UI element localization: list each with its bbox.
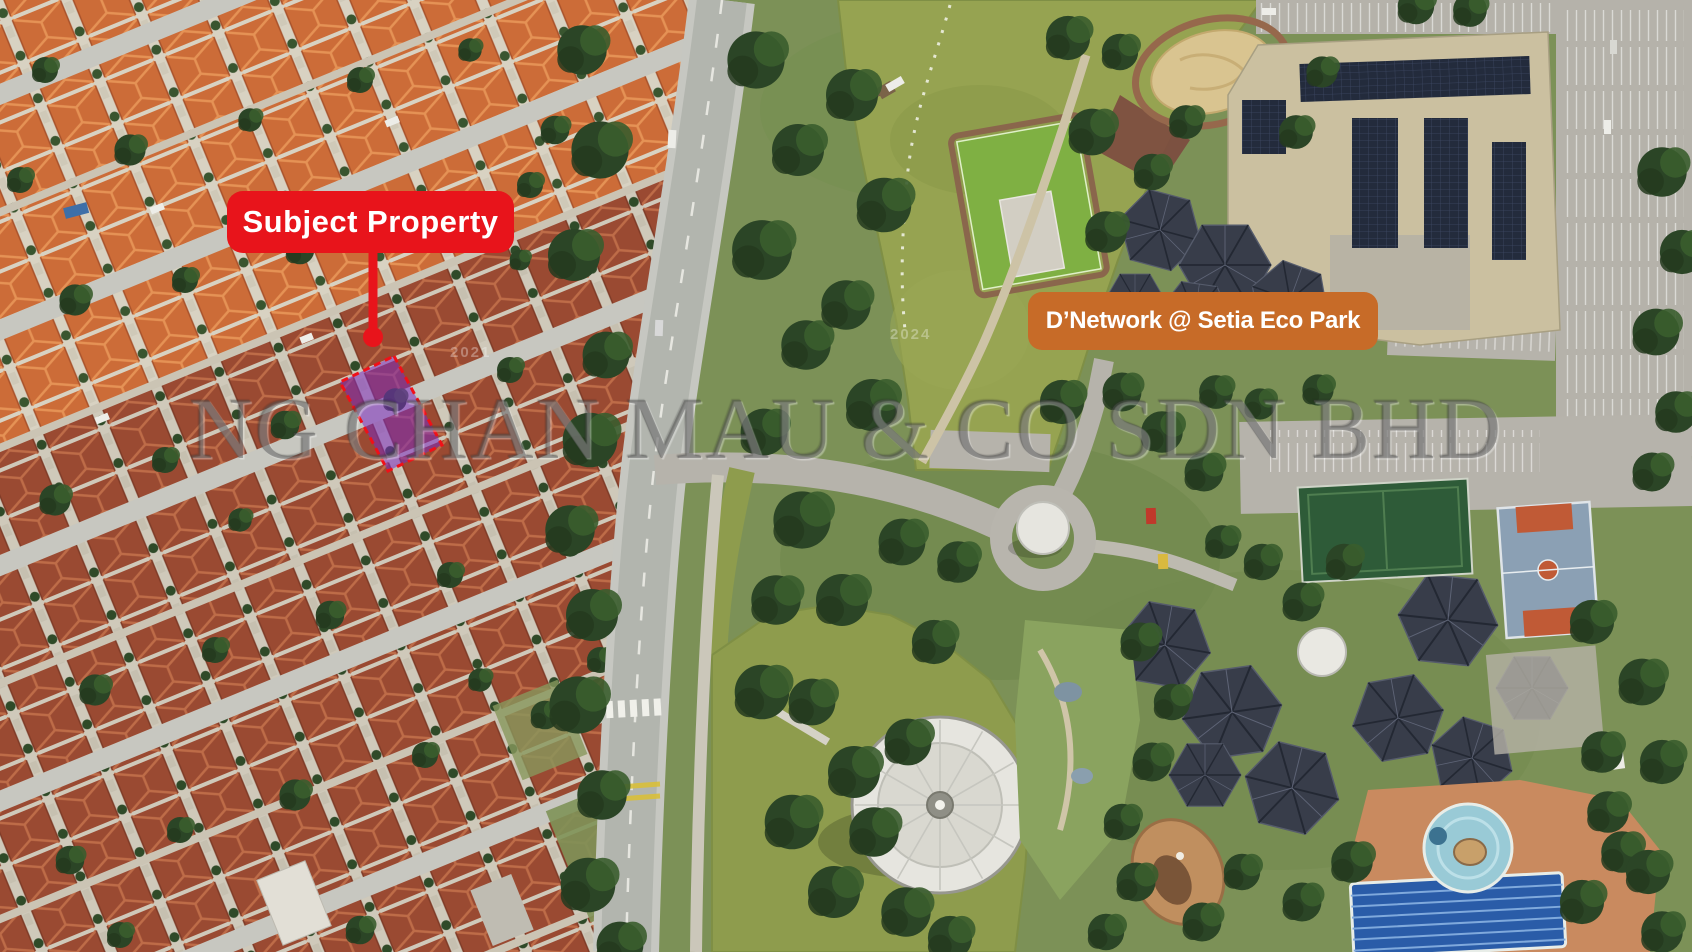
poi-label: D’Network @ Setia Eco Park (1028, 292, 1378, 350)
imagery-date-mark: 2024 (890, 326, 931, 343)
small-dome-roof (1298, 628, 1346, 676)
subject-property-label-text: Subject Property (242, 204, 498, 240)
poi-label-text: D’Network @ Setia Eco Park (1046, 307, 1360, 335)
car-yellow (1158, 554, 1169, 569)
subject-property-label: Subject Property (227, 191, 514, 253)
company-watermark: NG CHAN MAU & CO SDN BHD (189, 386, 1503, 474)
imagery-date-mark: 2021 (450, 344, 491, 361)
car-red (1146, 508, 1157, 524)
futsal-court (1298, 479, 1473, 583)
annotated-satellite-map: Subject Property D’Network @ Setia Eco P… (0, 0, 1692, 952)
round-pavilion-roof (1017, 502, 1069, 554)
